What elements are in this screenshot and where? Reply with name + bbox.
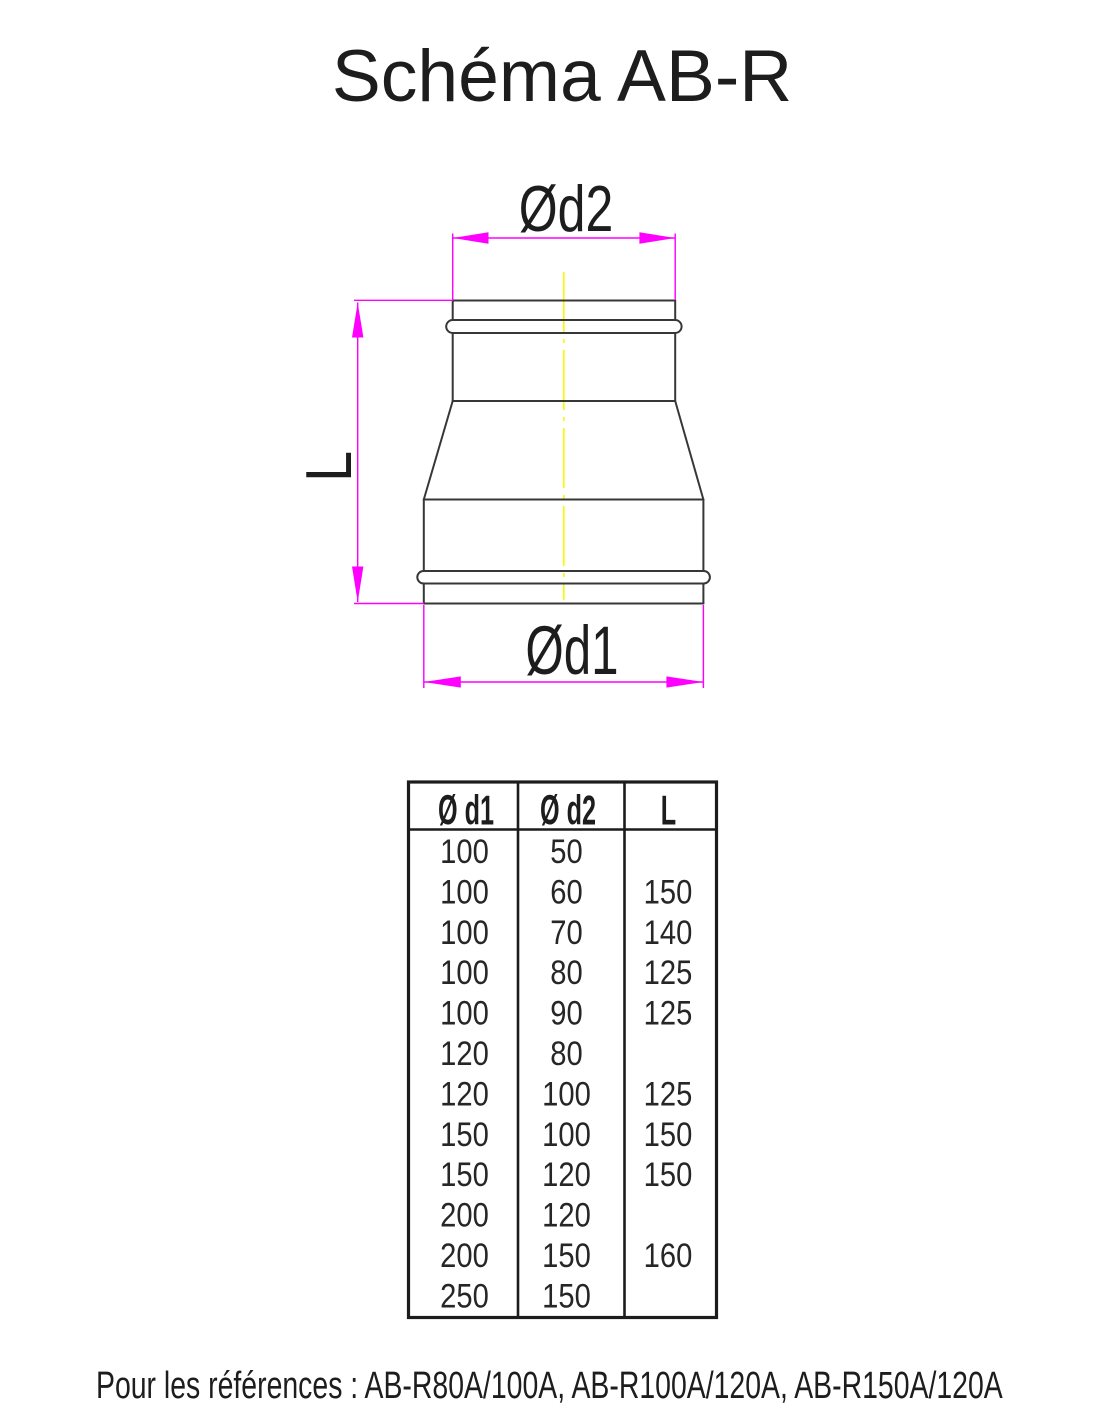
svg-text:Pour les références : AB-R80A/: Pour les références : AB-R80A/100A, AB-R…: [96, 1365, 1003, 1407]
svg-text:100: 100: [440, 953, 489, 992]
svg-text:120: 120: [542, 1195, 591, 1234]
svg-text:150: 150: [542, 1276, 591, 1315]
svg-text:200: 200: [440, 1236, 489, 1275]
svg-text:100: 100: [542, 1115, 591, 1154]
svg-text:L: L: [661, 788, 676, 834]
svg-text:50: 50: [550, 832, 582, 871]
svg-text:150: 150: [644, 1155, 693, 1194]
svg-text:250: 250: [440, 1276, 489, 1315]
svg-text:150: 150: [644, 872, 693, 911]
svg-text:100: 100: [440, 832, 489, 871]
svg-text:160: 160: [644, 1236, 693, 1275]
svg-text:80: 80: [550, 1034, 582, 1073]
svg-text:90: 90: [550, 993, 582, 1032]
svg-text:125: 125: [644, 1074, 693, 1113]
svg-text:120: 120: [542, 1155, 591, 1194]
svg-text:Schéma AB-R: Schéma AB-R: [332, 35, 792, 117]
svg-text:L: L: [293, 451, 365, 482]
svg-text:70: 70: [550, 913, 582, 952]
svg-text:100: 100: [440, 993, 489, 1032]
svg-text:Ød2: Ød2: [519, 174, 613, 246]
svg-text:150: 150: [440, 1155, 489, 1194]
svg-text:150: 150: [644, 1115, 693, 1154]
svg-text:150: 150: [440, 1115, 489, 1154]
svg-text:200: 200: [440, 1195, 489, 1234]
svg-text:125: 125: [644, 993, 693, 1032]
svg-text:125: 125: [644, 953, 693, 992]
svg-text:120: 120: [440, 1034, 489, 1073]
svg-text:140: 140: [644, 913, 693, 952]
svg-text:100: 100: [440, 913, 489, 952]
svg-text:100: 100: [542, 1074, 591, 1113]
svg-text:Ø d2: Ø d2: [540, 788, 596, 834]
svg-text:80: 80: [550, 953, 582, 992]
svg-text:100: 100: [440, 872, 489, 911]
svg-text:Ø d1: Ø d1: [438, 788, 494, 834]
svg-text:120: 120: [440, 1074, 489, 1113]
svg-text:Ød1: Ød1: [525, 612, 618, 689]
svg-text:150: 150: [542, 1236, 591, 1275]
svg-text:60: 60: [550, 872, 582, 911]
